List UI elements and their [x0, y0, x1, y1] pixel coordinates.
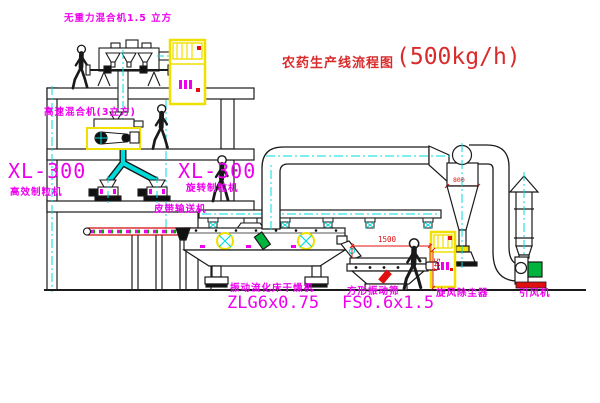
label-cyclone: 旋风除尘器	[436, 289, 489, 299]
granulator-left	[89, 176, 121, 203]
label-granulator-right-model: XL-300	[178, 161, 256, 181]
drawing-title: 农药生产线流程图 (500kg/h)	[282, 44, 521, 71]
gravity-mixer	[86, 40, 177, 112]
label-belt-conveyor: 皮带输送机	[154, 205, 207, 215]
person-floor2	[153, 105, 168, 149]
title-capacity: (500kg/h)	[396, 44, 521, 70]
label-gravity-mixer: 无重力混合机1.5 立方	[64, 14, 172, 24]
title-text: 农药生产线流程图	[282, 52, 394, 71]
label-sieve-model: FS0.6x1.5	[342, 295, 434, 312]
dim-cyclone-band: 800	[453, 177, 465, 184]
dim-sieve-length: 1500	[378, 236, 396, 244]
label-high-speed-mixer: 高速混合机(3立方)	[44, 108, 136, 118]
label-dryer-model: ZLG6x0.75	[227, 295, 319, 312]
label-granulator-left-name: 高效制粒机	[10, 188, 63, 198]
label-granulator-right-name: 旋转制粒机	[186, 184, 239, 194]
control-cabinet-1	[170, 40, 205, 104]
label-fan: 引风机	[519, 289, 551, 299]
person-floor1	[73, 45, 87, 88]
induced-draft-fan	[515, 257, 546, 288]
granulator-right	[138, 176, 170, 203]
label-granulator-left-model: XL-300	[8, 161, 86, 181]
dim-sieve-height: 541	[433, 258, 441, 272]
process-flow-drawing: 农药生产线流程图 (500kg/h) 无重力混合机1.5 立方 高速混合机(3立…	[0, 0, 600, 403]
